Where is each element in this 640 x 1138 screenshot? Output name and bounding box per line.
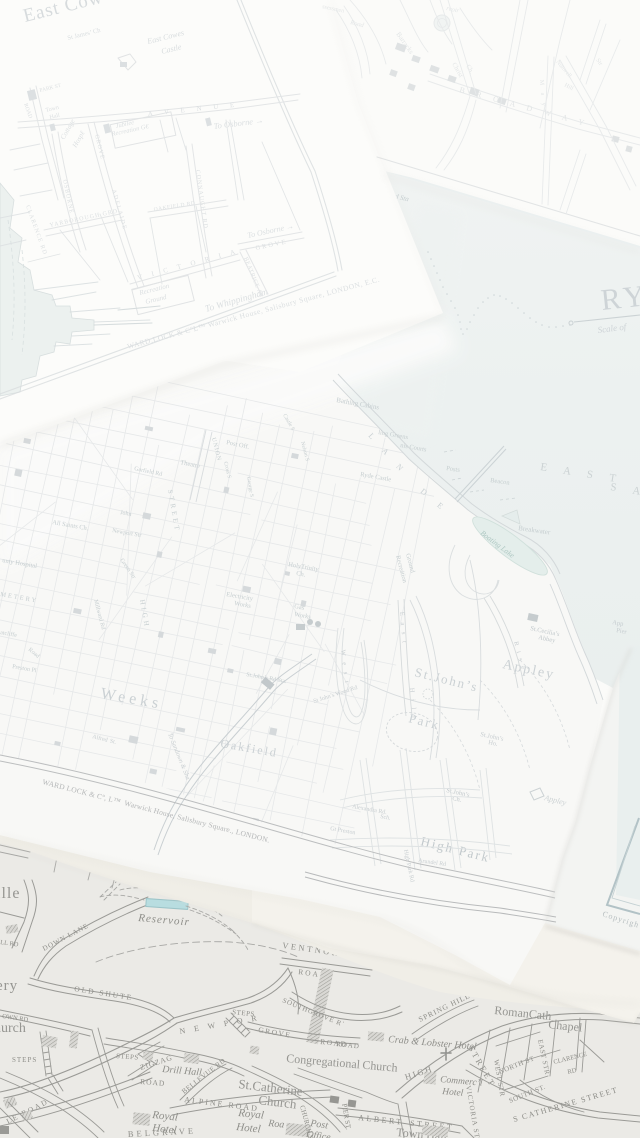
svg-text:STEPS: STEPS — [12, 1056, 37, 1064]
svg-text:Hotel: Hotel — [441, 1087, 464, 1099]
svg-text:hurch: hurch — [0, 1021, 26, 1036]
svg-text:ery: ery — [0, 978, 18, 994]
svg-text:Roa: Roa — [267, 1118, 285, 1131]
svg-text:ROAD: ROAD — [140, 1077, 166, 1088]
svg-text:STEPS: STEPS — [116, 1052, 139, 1062]
svg-text:RY: RY — [599, 279, 640, 317]
svg-text:ille: ille — [0, 885, 20, 902]
